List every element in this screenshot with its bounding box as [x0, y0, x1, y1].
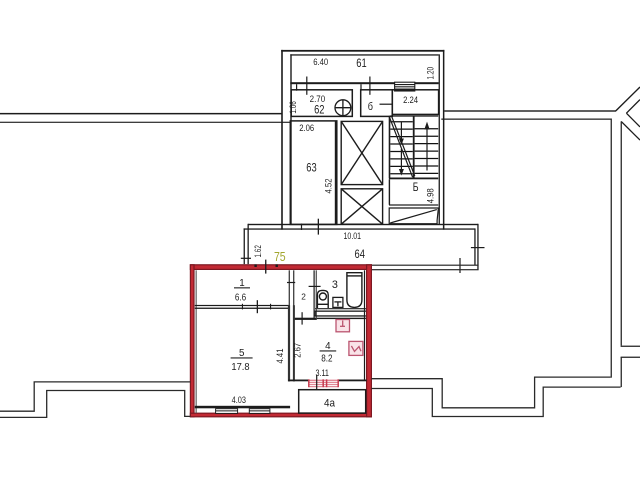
svg-text:4.03: 4.03 — [232, 395, 246, 405]
svg-text:1.06: 1.06 — [288, 101, 298, 114]
svg-text:62: 62 — [314, 102, 324, 116]
svg-text:5: 5 — [239, 348, 245, 359]
svg-text:4.41: 4.41 — [275, 349, 285, 364]
svg-text:3: 3 — [332, 279, 338, 291]
svg-text:1.62: 1.62 — [253, 245, 263, 257]
svg-text:61: 61 — [356, 56, 366, 70]
svg-text:6.6: 6.6 — [235, 293, 247, 304]
svg-text:64: 64 — [355, 247, 366, 261]
svg-text:4.98: 4.98 — [426, 188, 436, 203]
svg-text:6.40: 6.40 — [313, 57, 328, 67]
svg-text:2.70: 2.70 — [310, 94, 326, 104]
svg-text:1: 1 — [239, 278, 244, 289]
svg-text:4: 4 — [325, 341, 331, 352]
svg-text:Б: Б — [413, 180, 419, 194]
svg-text:2.24: 2.24 — [403, 95, 418, 105]
svg-text:б: б — [368, 101, 373, 113]
svg-text:2.06: 2.06 — [299, 123, 314, 133]
svg-text:8.2: 8.2 — [321, 354, 333, 365]
svg-text:75: 75 — [274, 250, 286, 264]
svg-text:4a: 4a — [324, 397, 335, 409]
svg-text:2.67: 2.67 — [293, 343, 303, 358]
svg-text:17.8: 17.8 — [231, 361, 249, 373]
svg-text:10.01: 10.01 — [344, 231, 362, 242]
svg-text:1.20: 1.20 — [426, 67, 436, 80]
svg-text:2: 2 — [301, 292, 306, 302]
svg-text:4.52: 4.52 — [324, 179, 334, 194]
svg-text:3.11: 3.11 — [315, 368, 329, 378]
svg-text:63: 63 — [306, 161, 317, 175]
